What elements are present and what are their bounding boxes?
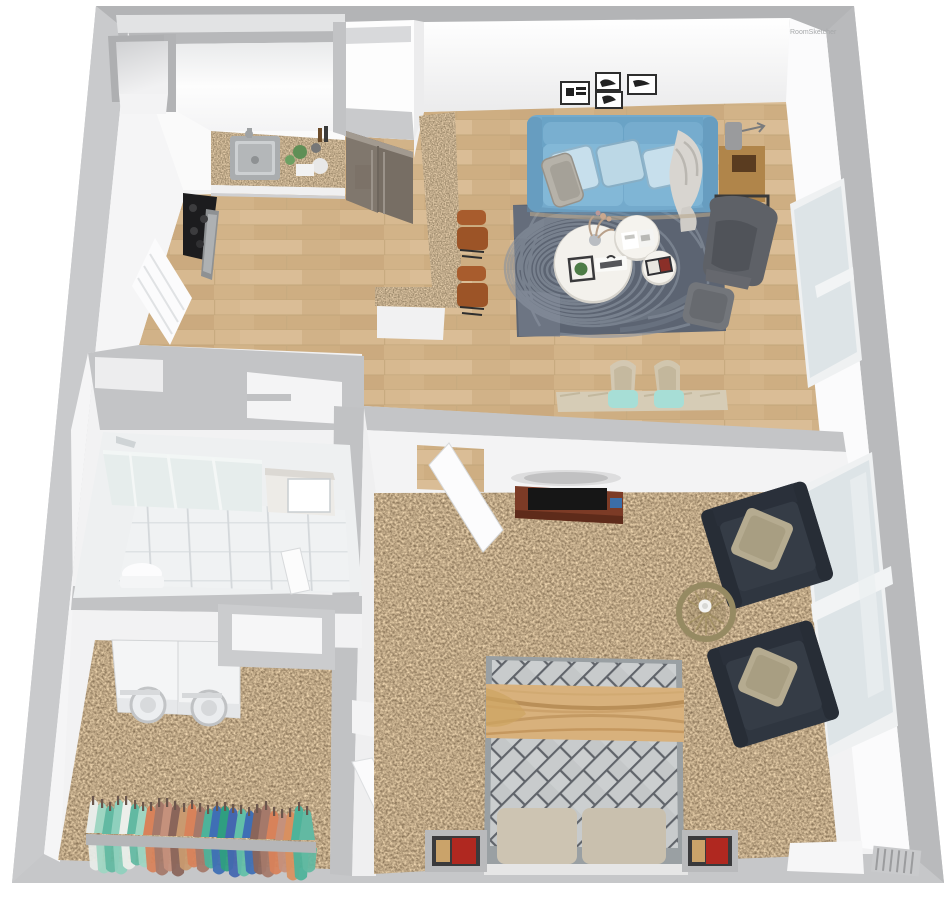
svg-text:RoomSketcher: RoomSketcher [790, 29, 837, 36]
